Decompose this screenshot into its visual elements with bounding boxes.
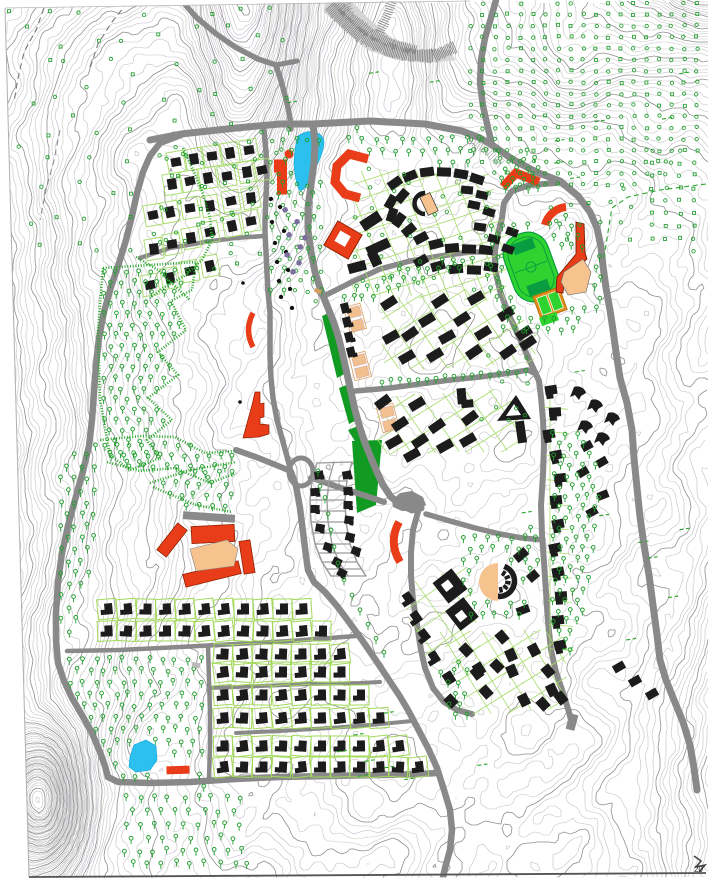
svg-text:20: 20 (694, 865, 703, 874)
